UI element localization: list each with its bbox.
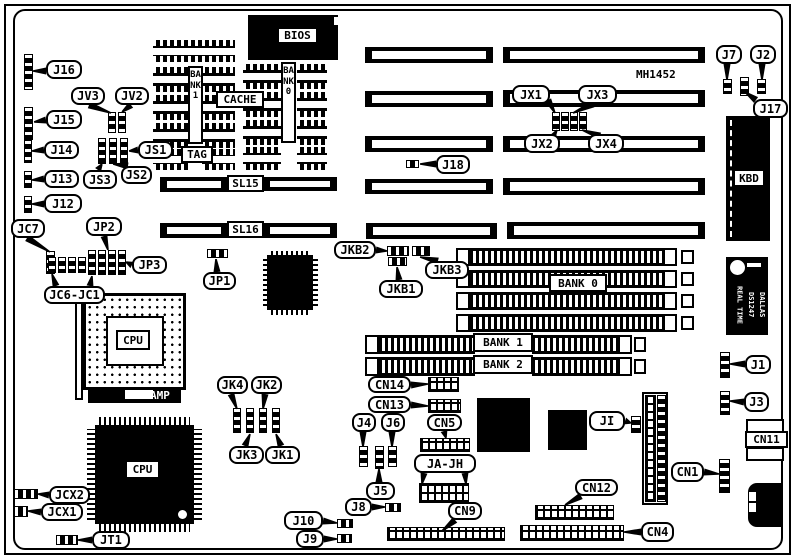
leader-line-js1 [129, 147, 138, 154]
leader-line-j1 [730, 361, 745, 368]
callout-js3: JS3 [83, 170, 117, 189]
callout-j14: J14 [44, 141, 79, 159]
leader-line-j18 [420, 161, 436, 168]
leader-line-j12 [32, 201, 44, 208]
callout-js1: JS1 [138, 141, 173, 159]
callout-j16: J16 [46, 60, 82, 79]
callout-jt1: JT1 [92, 531, 130, 549]
callout-j7: J7 [716, 45, 742, 64]
motherboard-diagram: AMPDALLAS DS1247 REAL TIMEBIOSCACHETAGBA… [0, 0, 793, 557]
callout-j4: J4 [352, 413, 376, 432]
callout-jv2: JV2 [115, 87, 149, 105]
callout-js2: JS2 [121, 166, 152, 184]
leader-line-cn1 [704, 469, 720, 476]
callout-j1: J1 [745, 355, 771, 374]
callout-jc7: JC7 [11, 219, 45, 238]
callout-cn1: CN1 [671, 462, 704, 482]
leader-line-jt1 [78, 537, 92, 544]
callout-j2: J2 [750, 45, 776, 64]
callout-j15: J15 [46, 110, 82, 129]
callout-cn14: CN14 [368, 376, 411, 393]
callout-cn4: CN4 [641, 522, 674, 542]
callout-jx4: JX4 [588, 134, 624, 153]
leader-line-jcx1 [28, 509, 41, 516]
callout-j12: J12 [44, 194, 82, 213]
leader-line-jp1 [214, 259, 221, 272]
leader-line-jcx2 [38, 492, 49, 499]
leader-line-cn13 [411, 402, 428, 409]
callout-jv3: JV3 [71, 87, 105, 105]
callout-jkb3: JKB3 [425, 261, 469, 279]
leader-line-jp2 [101, 235, 109, 250]
callout-jk3: JK3 [229, 446, 264, 464]
callout-j13: J13 [44, 170, 79, 188]
callout-jp3: JP3 [132, 256, 167, 274]
callout-j8: J8 [345, 498, 372, 516]
callout-jk2: JK2 [251, 376, 282, 394]
callout-j6: J6 [381, 413, 405, 432]
leader-line-j9 [324, 536, 337, 543]
callout-jcx1: JCX1 [41, 503, 83, 521]
callout-jk4: JK4 [217, 376, 248, 394]
callout-j3: J3 [744, 392, 769, 412]
callout-jp1: JP1 [203, 272, 236, 290]
callout-cn12: CN12 [575, 479, 618, 496]
leader-line-j3 [730, 399, 744, 406]
callout-j17: J17 [753, 99, 788, 118]
leader-line-j6 [389, 432, 396, 447]
leader-line-j14 [32, 147, 44, 154]
callout-cn13: CN13 [368, 396, 411, 413]
callout-cn5: CN5 [427, 414, 462, 431]
leader-line-j4 [360, 432, 367, 447]
callout-jx3: JX3 [578, 85, 617, 104]
callout-ja-jh: JA-JH [414, 454, 476, 473]
leader-line-j8 [372, 504, 385, 511]
leader-line-j10 [323, 518, 338, 525]
leader-line-j13 [32, 176, 44, 183]
callout-jkb2: JKB2 [334, 241, 376, 259]
callout-j10: J10 [284, 511, 323, 530]
leader-line-ja-jh [421, 472, 428, 484]
leader-line-j5 [376, 469, 383, 482]
leader-line-jk4 [228, 393, 238, 410]
leader-line-jkb2 [376, 247, 387, 254]
callout-j9: J9 [296, 530, 324, 548]
callout-jkb1: JKB1 [379, 280, 423, 298]
leader-line-cn5 [441, 430, 448, 438]
leader-line-jk2 [262, 394, 269, 410]
callout-j18: J18 [436, 155, 470, 174]
leader-line-j15 [34, 117, 47, 124]
leader-line-cn4 [624, 529, 641, 536]
leader-line-ja-jh [462, 473, 469, 484]
callout-jcx2: JCX2 [49, 486, 90, 504]
leader-line-j16 [33, 68, 46, 75]
callout-j5: J5 [366, 482, 395, 500]
callout-jk1: JK1 [265, 446, 300, 464]
leader-line-jkb1 [396, 267, 403, 281]
leader-line-j7 [724, 64, 731, 80]
callout-jx1: JX1 [512, 85, 550, 104]
callout-cn9: CN9 [448, 502, 482, 520]
callout-jc6-jc1: JC6-JC1 [44, 286, 105, 304]
callout-ji: JI [589, 411, 625, 431]
callout-jx2: JX2 [524, 134, 560, 153]
leader-line-cn14 [411, 382, 428, 389]
leader-line-j2 [759, 64, 766, 80]
callout-jp2: JP2 [86, 217, 122, 236]
